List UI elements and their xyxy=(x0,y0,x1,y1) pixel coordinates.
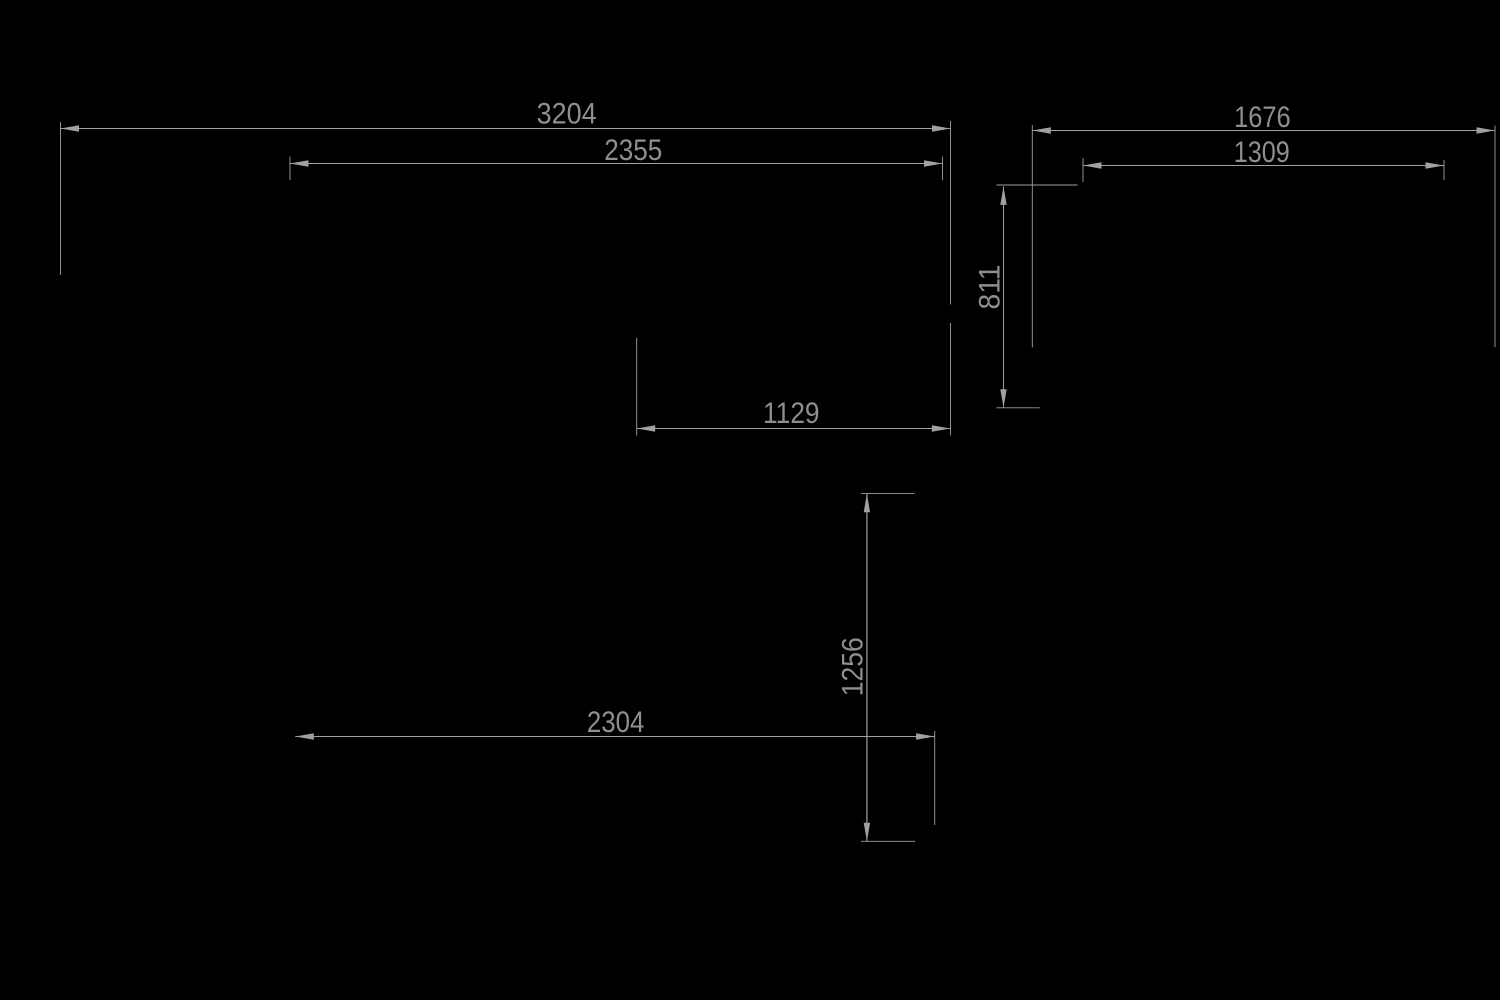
svg-text:811: 811 xyxy=(973,265,1006,310)
svg-text:2304: 2304 xyxy=(587,706,645,739)
svg-text:1676: 1676 xyxy=(1234,101,1291,134)
svg-text:1309: 1309 xyxy=(1234,136,1290,169)
svg-text:1129: 1129 xyxy=(763,397,820,430)
svg-text:1256: 1256 xyxy=(837,637,870,696)
svg-text:2355: 2355 xyxy=(604,134,662,167)
svg-text:3204: 3204 xyxy=(537,98,597,131)
